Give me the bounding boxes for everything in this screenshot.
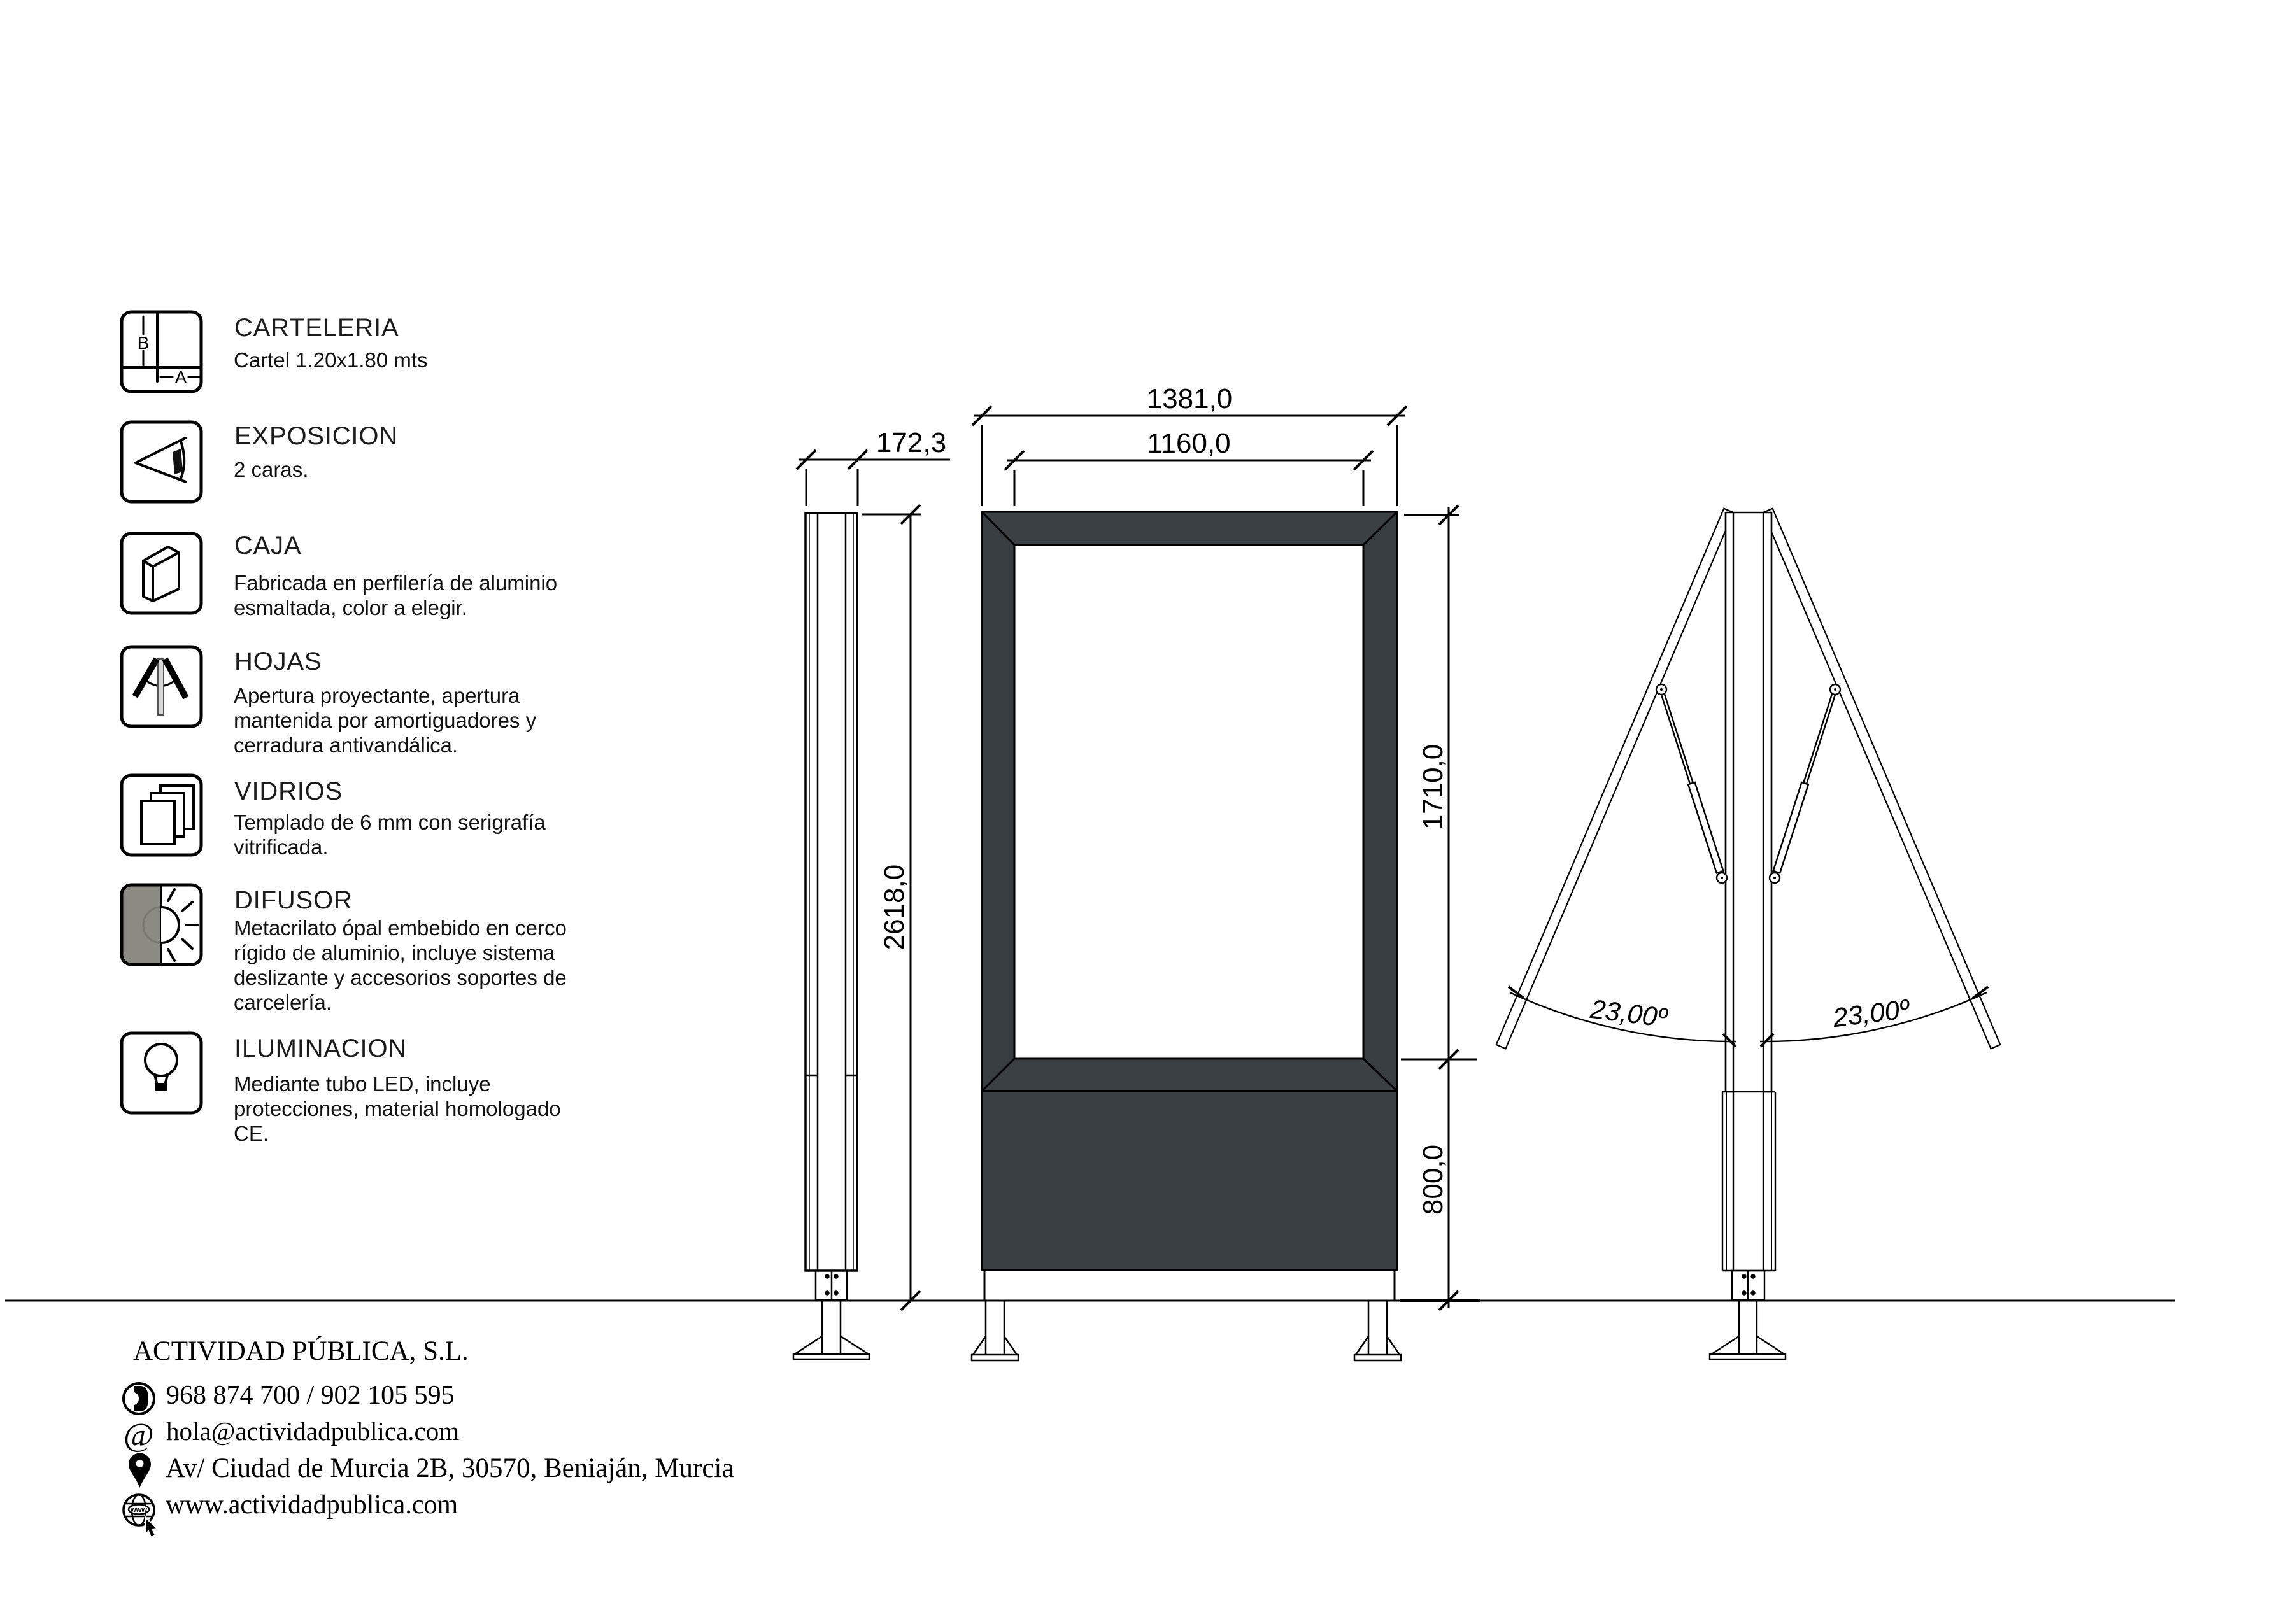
svg-text:CARTELERIA: CARTELERIA (234, 314, 399, 342)
svg-text:1381,0: 1381,0 (1147, 383, 1233, 414)
svg-text:vitrificada.: vitrificada. (234, 835, 329, 859)
svg-text:ACTIVIDAD PÚBLICA, S.L.: ACTIVIDAD PÚBLICA, S.L. (133, 1336, 469, 1366)
svg-text:www.actividadpublica.com: www.actividadpublica.com (166, 1490, 458, 1520)
svg-text:VIDRIOS: VIDRIOS (234, 777, 343, 805)
svg-text:A: A (175, 367, 187, 387)
svg-text:protecciones, material homolog: protecciones, material homologado (234, 1097, 561, 1120)
svg-text:carcelería.: carcelería. (234, 991, 332, 1014)
svg-text:rígido de aluminio, incluye si: rígido de aluminio, incluye sistema (234, 941, 555, 964)
svg-text:www: www (130, 1506, 147, 1514)
svg-text:Metacrilato ópal embebido en c: Metacrilato ópal embebido en cerco (234, 916, 567, 940)
svg-text:B: B (138, 333, 150, 353)
svg-text:1710,0: 1710,0 (1417, 744, 1449, 830)
svg-text:DIFUSOR: DIFUSOR (234, 886, 353, 914)
svg-text:Cartel 1.20x1.80 mts: Cartel 1.20x1.80 mts (234, 348, 427, 372)
svg-text:@: @ (124, 1417, 154, 1453)
svg-text:hola@actividadpublica.com: hola@actividadpublica.com (166, 1416, 459, 1446)
svg-text:ILUMINACION: ILUMINACION (234, 1034, 407, 1063)
svg-text:2618,0: 2618,0 (879, 865, 910, 950)
svg-text:968 874 700 / 902 105 595: 968 874 700 / 902 105 595 (166, 1381, 455, 1410)
svg-text:EXPOSICION: EXPOSICION (234, 422, 398, 450)
svg-text:Av/ Ciudad de Murcia 2B, 30570: Av/ Ciudad de Murcia 2B, 30570, Beniaján… (166, 1453, 734, 1483)
svg-text:Templado de 6 mm con serigrafí: Templado de 6 mm con serigrafía (234, 810, 546, 834)
svg-text:HOJAS: HOJAS (234, 647, 322, 675)
svg-text:Fabricada en perfilería de alu: Fabricada en perfilería de aluminio (234, 571, 557, 595)
svg-text:deslizante y accesorios soport: deslizante y accesorios soportes de (234, 966, 567, 989)
svg-text:CAJA: CAJA (234, 532, 301, 560)
svg-text:CE.: CE. (234, 1122, 269, 1145)
svg-text:Apertura proyectante, apertura: Apertura proyectante, apertura (234, 684, 520, 707)
svg-text:mantenida por amortiguadores y: mantenida por amortiguadores y (234, 709, 537, 732)
svg-text:172,3: 172,3 (876, 427, 946, 458)
svg-text:esmaltada, color a elegir.: esmaltada, color a elegir. (234, 596, 467, 619)
svg-text:2 caras.: 2 caras. (234, 458, 308, 481)
svg-text:1160,0: 1160,0 (1147, 428, 1230, 459)
svg-text:Mediante tubo LED, incluye: Mediante tubo LED, incluye (234, 1072, 491, 1096)
svg-text:800,0: 800,0 (1417, 1145, 1449, 1215)
svg-text:cerradura antivandálica.: cerradura antivandálica. (234, 733, 458, 757)
